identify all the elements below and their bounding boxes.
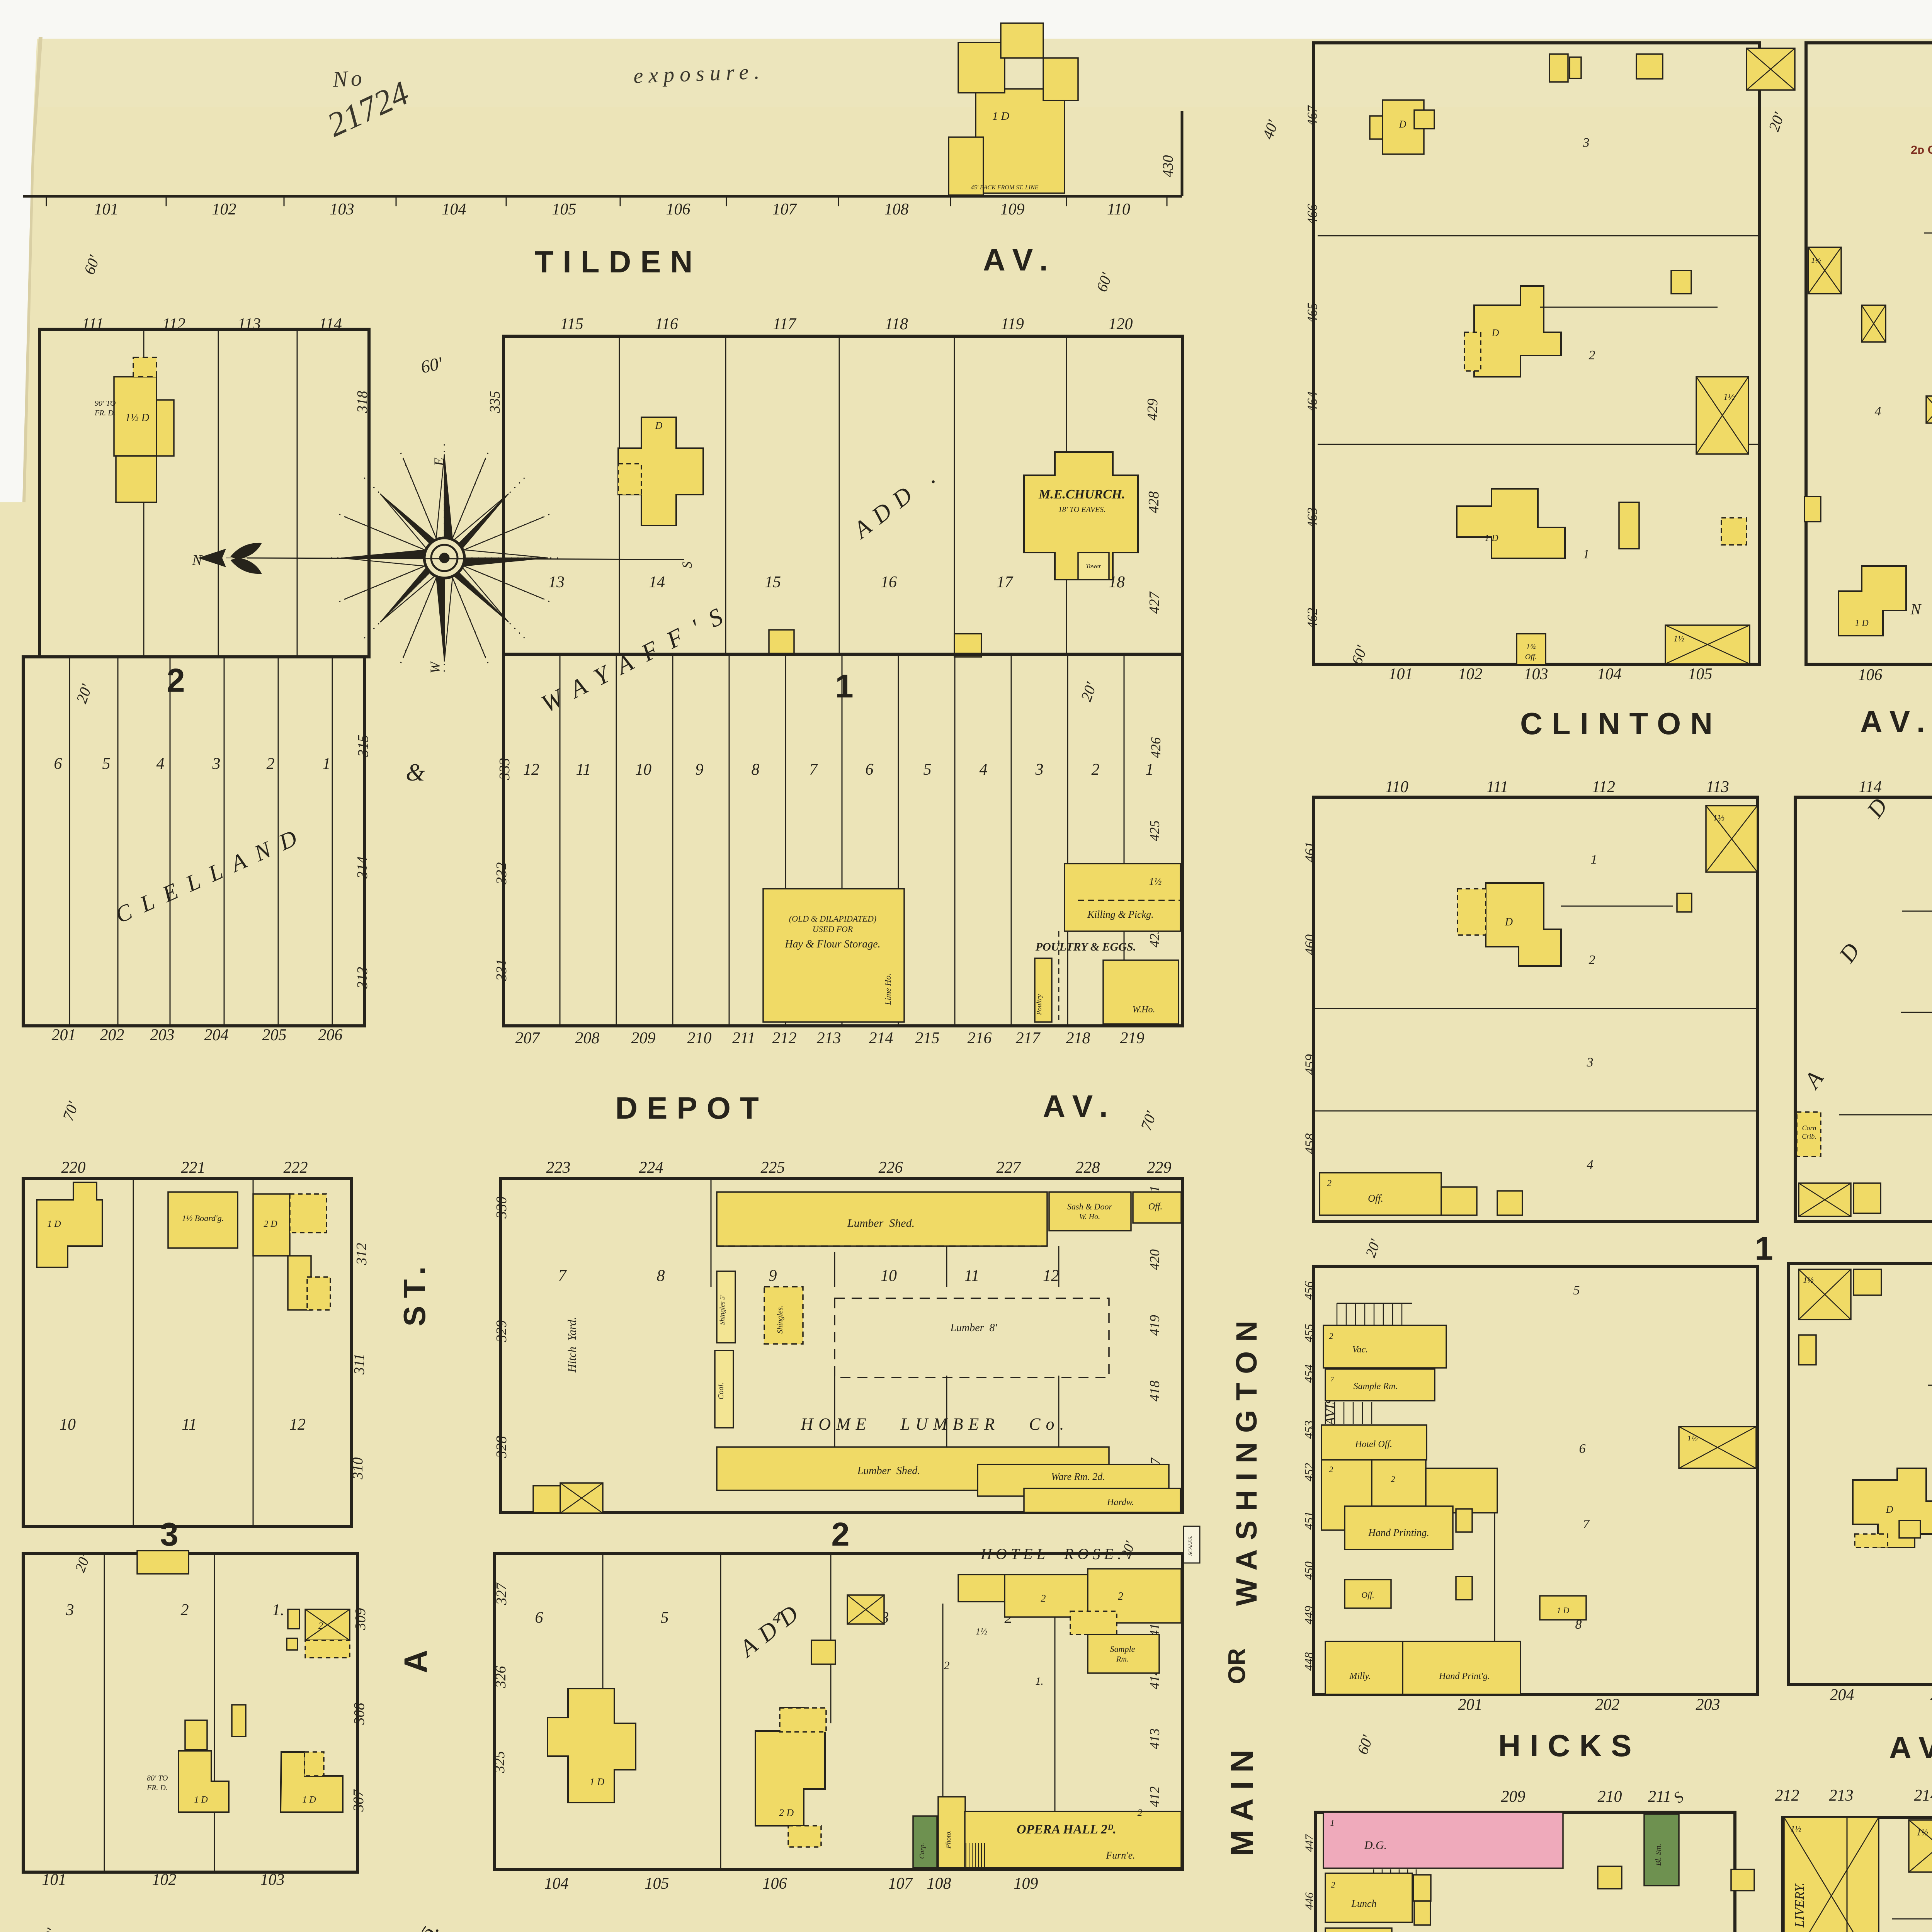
svg-text:104: 104 (442, 201, 466, 218)
svg-text:1½: 1½ (1673, 634, 1684, 643)
svg-text:455: 455 (1302, 1324, 1316, 1342)
svg-text:105: 105 (552, 201, 577, 218)
svg-text:HICKS: HICKS (1498, 1728, 1641, 1763)
svg-text:462: 462 (1304, 608, 1320, 629)
svg-text:2ᴅ COPY DEL 7O MAP DIV.: 2ᴅ COPY DEL 7O MAP DIV. (1911, 143, 1932, 156)
svg-text:315: 315 (355, 735, 371, 757)
svg-text:6: 6 (866, 761, 874, 779)
svg-text:214: 214 (1914, 1787, 1932, 1804)
svg-text:2 D: 2 D (264, 1219, 277, 1229)
svg-text:308: 308 (351, 1703, 367, 1725)
svg-text:2: 2 (1092, 761, 1100, 779)
svg-text:102: 102 (152, 1871, 177, 1889)
svg-text:1: 1 (1583, 547, 1590, 561)
svg-text:1 D: 1 D (302, 1795, 316, 1805)
svg-text:WASHINGTON: WASHINGTON (1230, 1311, 1263, 1606)
svg-text:1 D: 1 D (1855, 618, 1868, 628)
svg-text:1½: 1½ (1149, 876, 1162, 887)
svg-text:FR. D.: FR. D. (146, 1784, 168, 1792)
svg-text:D: D (1505, 916, 1513, 928)
svg-text:220: 220 (61, 1159, 86, 1177)
svg-text:103: 103 (260, 1871, 285, 1889)
svg-text:CLINTON: CLINTON (1520, 706, 1722, 741)
svg-text:Hand Print'g.: Hand Print'g. (1439, 1671, 1490, 1681)
svg-text:429: 429 (1145, 399, 1161, 421)
svg-text:&: & (406, 759, 425, 786)
svg-text:104: 104 (1597, 665, 1622, 683)
svg-text:420: 420 (1147, 1249, 1162, 1270)
svg-text:328: 328 (493, 1436, 510, 1459)
svg-text:Bl. Sm.: Bl. Sm. (1654, 1844, 1663, 1866)
svg-text:1½: 1½ (1917, 1828, 1928, 1838)
svg-text:225: 225 (761, 1159, 785, 1177)
svg-text:447: 447 (1303, 1834, 1316, 1852)
svg-text:AV.: AV. (1889, 1730, 1932, 1765)
svg-text:205: 205 (262, 1026, 287, 1044)
svg-text:101: 101 (42, 1871, 66, 1889)
svg-text:Sample: Sample (1110, 1644, 1135, 1654)
svg-text:LIVERY.: LIVERY. (1793, 1883, 1807, 1928)
svg-text:222: 222 (284, 1159, 308, 1177)
svg-text:2: 2 (167, 662, 185, 699)
svg-text:209: 209 (631, 1029, 656, 1047)
svg-text:Hay & Flour Storage.: Hay & Flour Storage. (784, 938, 880, 950)
svg-text:418: 418 (1147, 1381, 1162, 1401)
svg-text:1½: 1½ (976, 1627, 987, 1637)
svg-text:(OLD & DILAPIDATED): (OLD & DILAPIDATED) (789, 914, 877, 923)
svg-text:2: 2 (944, 1659, 950, 1672)
svg-text:9: 9 (769, 1267, 777, 1285)
svg-text:7: 7 (1331, 1375, 1335, 1383)
svg-text:467: 467 (1304, 105, 1320, 126)
svg-text:307: 307 (350, 1789, 367, 1812)
svg-text:102: 102 (212, 201, 236, 218)
svg-text:AV.: AV. (1860, 704, 1932, 739)
svg-text:2: 2 (1329, 1331, 1333, 1341)
svg-text:451: 451 (1302, 1511, 1316, 1530)
svg-text:Vac.: Vac. (1352, 1345, 1368, 1355)
svg-text:204: 204 (1830, 1686, 1854, 1704)
svg-text:333: 333 (497, 758, 513, 781)
svg-text:332: 332 (493, 862, 510, 885)
svg-text:5: 5 (661, 1609, 669, 1627)
svg-text:HOME LUMBER Co.: HOME LUMBER Co. (801, 1415, 1070, 1434)
svg-text:4: 4 (1875, 404, 1881, 418)
svg-text:460: 460 (1302, 934, 1318, 955)
svg-text:206: 206 (318, 1026, 343, 1044)
svg-text:7: 7 (810, 761, 818, 779)
svg-text:211: 211 (732, 1029, 755, 1047)
svg-text:E: E (431, 457, 447, 466)
svg-text:1½: 1½ (1713, 813, 1725, 823)
svg-text:Sample Rm.: Sample Rm. (1354, 1381, 1398, 1391)
svg-text:312: 312 (354, 1243, 370, 1265)
svg-text:117: 117 (773, 315, 797, 333)
svg-text:310: 310 (350, 1458, 366, 1480)
svg-text:207: 207 (515, 1029, 541, 1047)
svg-text:311: 311 (351, 1354, 367, 1375)
svg-text:11: 11 (964, 1267, 980, 1285)
svg-text:450: 450 (1302, 1561, 1316, 1580)
svg-text:413: 413 (1147, 1728, 1162, 1749)
svg-text:15: 15 (765, 573, 781, 591)
svg-text:11: 11 (182, 1416, 197, 1434)
svg-text:1: 1 (835, 668, 853, 705)
svg-text:6: 6 (1579, 1442, 1586, 1456)
svg-text:MAIN: MAIN (1225, 1741, 1260, 1856)
svg-text:1½: 1½ (1803, 1275, 1814, 1285)
svg-text:12: 12 (1043, 1267, 1059, 1285)
svg-text:A: A (398, 1650, 434, 1673)
svg-text:10: 10 (881, 1267, 897, 1285)
svg-text:Rm.: Rm. (1116, 1655, 1129, 1663)
svg-text:214: 214 (869, 1029, 893, 1047)
svg-text:USED FOR: USED FOR (813, 924, 853, 934)
svg-text:Off.: Off. (1361, 1590, 1374, 1600)
svg-text:3: 3 (1587, 1055, 1594, 1070)
svg-text:109: 109 (1014, 1875, 1038, 1893)
svg-text:452: 452 (1302, 1463, 1316, 1481)
svg-text:218: 218 (1066, 1029, 1090, 1047)
svg-text:1 D: 1 D (47, 1219, 61, 1229)
svg-text:No: No (332, 65, 366, 92)
svg-text:1.: 1. (1036, 1675, 1044, 1687)
svg-text:1 D: 1 D (1557, 1605, 1570, 1615)
svg-text:326: 326 (493, 1666, 509, 1689)
svg-text:120: 120 (1109, 315, 1133, 333)
svg-text:113: 113 (1706, 778, 1729, 796)
svg-text:227: 227 (997, 1159, 1022, 1177)
svg-text:1: 1 (1591, 852, 1597, 867)
svg-text:CENTER: CENTER (777, 1929, 960, 1932)
svg-text:5: 5 (102, 755, 111, 773)
svg-text:224: 224 (639, 1159, 663, 1177)
svg-text:211: 211 (1648, 1788, 1671, 1806)
svg-text:327: 327 (493, 1582, 510, 1605)
svg-text:Coal.: Coal. (717, 1383, 725, 1400)
svg-text:329: 329 (493, 1320, 510, 1343)
svg-text:AV.: AV. (983, 243, 1057, 277)
svg-text:Lunch: Lunch (1351, 1898, 1377, 1909)
svg-text:202: 202 (1595, 1696, 1620, 1714)
svg-text:Hand Printing.: Hand Printing. (1368, 1527, 1429, 1538)
svg-text:219: 219 (1120, 1029, 1145, 1047)
svg-text:S: S (679, 561, 695, 568)
svg-text:419: 419 (1147, 1315, 1162, 1336)
svg-text:112: 112 (162, 315, 185, 333)
svg-text:1: 1 (1755, 1230, 1773, 1267)
svg-text:118: 118 (885, 315, 908, 333)
svg-text:Off.: Off. (1525, 653, 1537, 661)
svg-text:TILDEN: TILDEN (535, 245, 702, 279)
svg-text:229: 229 (1147, 1159, 1172, 1177)
svg-text:12: 12 (289, 1416, 306, 1434)
svg-text:D: D (1492, 327, 1499, 338)
svg-text:1: 1 (323, 755, 331, 773)
svg-text:2: 2 (1331, 1880, 1335, 1889)
svg-text:201: 201 (52, 1026, 76, 1044)
svg-text:N: N (1910, 600, 1922, 618)
svg-text:335: 335 (487, 391, 503, 413)
svg-text:102: 102 (1458, 665, 1483, 683)
svg-text:221: 221 (181, 1159, 206, 1177)
svg-text:8: 8 (752, 761, 760, 779)
svg-text:1 D: 1 D (1485, 533, 1498, 543)
svg-text:446: 446 (1303, 1893, 1316, 1910)
svg-text:Ware Rm. 2d.: Ware Rm. 2d. (1051, 1471, 1105, 1482)
svg-text:205: 205 (1930, 1686, 1932, 1704)
svg-text:SCALES.: SCALES. (1188, 1536, 1194, 1556)
svg-text:6: 6 (54, 755, 62, 773)
svg-text:90' TO: 90' TO (95, 399, 116, 408)
svg-text:FR. D.: FR. D. (94, 409, 116, 417)
svg-text:101: 101 (94, 201, 119, 218)
svg-text:228: 228 (1076, 1159, 1100, 1177)
svg-text:11: 11 (576, 761, 591, 779)
svg-text:N: N (192, 552, 203, 568)
svg-text:2: 2 (831, 1516, 849, 1553)
svg-text:106: 106 (1858, 666, 1883, 684)
svg-text:1.: 1. (272, 1601, 284, 1619)
svg-text:3: 3 (1583, 136, 1590, 150)
svg-text:7: 7 (1583, 1517, 1590, 1531)
svg-text:456: 456 (1302, 1281, 1316, 1300)
svg-text:458: 458 (1302, 1133, 1318, 1154)
svg-text:426: 426 (1148, 737, 1163, 758)
svg-text:314: 314 (354, 857, 371, 879)
svg-text:Poultry: Poultry (1035, 994, 1043, 1015)
svg-text:318: 318 (354, 391, 371, 413)
svg-text:4: 4 (156, 755, 165, 773)
svg-text:1 D: 1 D (590, 1776, 605, 1787)
svg-text:Shingles.: Shingles. (776, 1306, 784, 1334)
svg-text:226: 226 (879, 1159, 903, 1177)
svg-text:ST.: ST. (397, 1259, 432, 1327)
svg-text:80' TO: 80' TO (147, 1774, 168, 1782)
svg-text:1½: 1½ (1811, 256, 1821, 265)
svg-text:448: 448 (1302, 1652, 1316, 1671)
svg-text:105: 105 (1688, 665, 1713, 683)
svg-text:325: 325 (492, 1751, 508, 1774)
svg-text:461: 461 (1302, 842, 1318, 862)
svg-text:Lime Ho.: Lime Ho. (883, 973, 893, 1005)
svg-text:M.E.CHURCH.: M.E.CHURCH. (1038, 487, 1125, 502)
svg-text:2: 2 (1391, 1474, 1395, 1484)
svg-text:Sash & Door: Sash & Door (1067, 1202, 1112, 1211)
svg-text:330: 330 (493, 1197, 510, 1219)
svg-text:1½ Board'g.: 1½ Board'g. (182, 1213, 224, 1223)
svg-text:5: 5 (923, 761, 932, 779)
svg-text:203: 203 (150, 1026, 175, 1044)
svg-text:213: 213 (1829, 1787, 1854, 1804)
svg-text:3: 3 (160, 1516, 178, 1553)
svg-text:101: 101 (1389, 665, 1413, 683)
svg-text:W: W (427, 661, 443, 673)
svg-text:213: 213 (817, 1029, 841, 1047)
svg-text:106: 106 (666, 201, 690, 218)
svg-text:1: 1 (1330, 1818, 1335, 1828)
svg-text:454: 454 (1302, 1364, 1316, 1383)
svg-text:106: 106 (763, 1875, 787, 1893)
svg-text:18' TO EAVES.: 18' TO EAVES. (1058, 505, 1105, 514)
svg-text:Corn: Corn (1802, 1124, 1816, 1132)
svg-text:D: D (1886, 1504, 1893, 1515)
svg-text:AV.: AV. (1043, 1089, 1117, 1123)
svg-text:1: 1 (1146, 761, 1154, 779)
svg-text:Killing & Pickg.: Killing & Pickg. (1087, 909, 1153, 920)
svg-text:459: 459 (1302, 1054, 1318, 1075)
svg-text:W. Ho.: W. Ho. (1079, 1213, 1100, 1221)
svg-text:463: 463 (1304, 507, 1320, 528)
svg-text:113: 113 (238, 315, 261, 333)
svg-text:14: 14 (649, 573, 665, 591)
svg-text:1½ D: 1½ D (125, 412, 149, 424)
svg-text:Crib.: Crib. (1802, 1133, 1816, 1140)
svg-text:8: 8 (657, 1267, 665, 1285)
svg-text:3: 3 (1035, 761, 1044, 779)
svg-text:466: 466 (1304, 204, 1320, 225)
svg-text:104: 104 (544, 1875, 569, 1893)
svg-text:2: 2 (267, 755, 275, 773)
svg-text:313: 313 (354, 967, 371, 989)
svg-text:1½: 1½ (1687, 1434, 1698, 1443)
svg-text:Off.: Off. (1368, 1193, 1383, 1204)
svg-text:110: 110 (1107, 201, 1130, 218)
svg-text:Tower: Tower (1086, 563, 1101, 570)
svg-text:103: 103 (330, 201, 354, 218)
svg-text:111: 111 (1486, 778, 1509, 796)
svg-text:Hitch Yard.: Hitch Yard. (566, 1317, 578, 1373)
svg-text:5: 5 (1573, 1283, 1580, 1298)
svg-text:210: 210 (1598, 1788, 1622, 1806)
svg-text:208: 208 (575, 1029, 600, 1047)
svg-text:45' BACK FROM ST. LINE: 45' BACK FROM ST. LINE (971, 184, 1038, 191)
svg-text:1½: 1½ (1723, 392, 1735, 402)
svg-text:114: 114 (319, 315, 342, 333)
svg-text:2: 2 (1138, 1807, 1143, 1818)
svg-text:D: D (1399, 119, 1406, 130)
svg-text:201: 201 (1458, 1696, 1483, 1714)
svg-text:105: 105 (645, 1875, 669, 1893)
svg-text:7: 7 (558, 1267, 567, 1285)
svg-text:331: 331 (493, 959, 510, 981)
svg-text:427: 427 (1146, 591, 1163, 614)
svg-text:428: 428 (1146, 492, 1162, 514)
svg-text:DEPOT: DEPOT (615, 1091, 768, 1125)
svg-text:Photo.: Photo. (944, 1830, 952, 1849)
svg-text:216: 216 (968, 1029, 992, 1047)
svg-text:9: 9 (696, 761, 704, 779)
svg-text:W.Ho.: W.Ho. (1132, 1005, 1155, 1015)
svg-text:412: 412 (1147, 1786, 1162, 1807)
svg-text:Milly.: Milly. (1349, 1671, 1371, 1681)
svg-text:119: 119 (1001, 315, 1024, 333)
svg-text:112: 112 (1592, 778, 1615, 796)
svg-text:209: 209 (1501, 1788, 1526, 1806)
svg-text:464: 464 (1304, 391, 1320, 412)
svg-text:108: 108 (927, 1875, 951, 1893)
svg-text:16: 16 (881, 573, 897, 591)
svg-text:POULTRY & EGGS.: POULTRY & EGGS. (1035, 940, 1136, 953)
svg-text:Off.: Off. (1148, 1202, 1163, 1212)
svg-text:1 D: 1 D (992, 110, 1010, 122)
svg-text:13: 13 (548, 573, 565, 591)
svg-text:425: 425 (1147, 820, 1162, 841)
svg-text:2: 2 (1118, 1590, 1123, 1602)
svg-text:17: 17 (997, 573, 1014, 591)
svg-text:212: 212 (1775, 1787, 1799, 1804)
svg-text:430: 430 (1160, 155, 1176, 177)
svg-text:Lumber 8': Lumber 8' (950, 1322, 997, 1334)
svg-text:12: 12 (523, 761, 539, 779)
svg-text:2: 2 (1327, 1179, 1332, 1189)
svg-text:OR: OR (1224, 1648, 1250, 1684)
svg-text:116: 116 (655, 315, 678, 333)
svg-text:Hotel Off.: Hotel Off. (1355, 1439, 1392, 1449)
svg-text:203: 203 (1696, 1696, 1720, 1714)
svg-text:107: 107 (888, 1875, 913, 1893)
svg-text:202: 202 (100, 1026, 124, 1044)
svg-text:215: 215 (915, 1029, 940, 1047)
svg-text:223: 223 (546, 1159, 571, 1177)
svg-text:1 D: 1 D (194, 1795, 207, 1805)
svg-text:217: 217 (1016, 1029, 1041, 1047)
svg-text:exposure.: exposure. (633, 60, 765, 88)
svg-text:2: 2 (1589, 348, 1595, 362)
svg-text:3: 3 (212, 755, 221, 773)
svg-text:D: D (655, 420, 663, 431)
svg-text:108: 108 (884, 201, 909, 218)
svg-text:210: 210 (687, 1029, 712, 1047)
svg-text:2 D: 2 D (779, 1807, 794, 1818)
svg-text:Furn'e.: Furn'e. (1105, 1850, 1135, 1861)
svg-text:Hardw.: Hardw. (1107, 1497, 1134, 1507)
svg-text:10: 10 (635, 761, 651, 779)
svg-text:449: 449 (1302, 1606, 1316, 1624)
svg-text:2: 2 (1329, 1464, 1333, 1474)
svg-text:D.G.: D.G. (1364, 1839, 1387, 1852)
svg-text:Lumber Shed.: Lumber Shed. (847, 1217, 915, 1230)
svg-text:114: 114 (1859, 778, 1882, 796)
svg-text:110: 110 (1385, 778, 1408, 796)
svg-text:10: 10 (60, 1416, 76, 1434)
svg-text:309: 309 (352, 1608, 369, 1631)
svg-text:2: 2 (1041, 1593, 1046, 1604)
svg-text:109: 109 (1000, 201, 1025, 218)
svg-text:Shingles 5': Shingles 5' (718, 1294, 726, 1325)
svg-text:3: 3 (66, 1601, 74, 1619)
svg-text:465: 465 (1304, 303, 1320, 323)
svg-text:453: 453 (1302, 1420, 1316, 1439)
svg-text:1½: 1½ (1791, 1824, 1801, 1833)
svg-text:115: 115 (560, 315, 583, 333)
svg-text:4: 4 (980, 761, 988, 779)
svg-text:107: 107 (772, 201, 798, 218)
svg-text:111: 111 (82, 315, 104, 333)
svg-text:2: 2 (318, 1621, 323, 1631)
svg-text:204: 204 (204, 1026, 229, 1044)
svg-text:103: 103 (1524, 665, 1548, 683)
svg-text:1¾: 1¾ (1526, 643, 1536, 651)
svg-text:Lumber Shed.: Lumber Shed. (857, 1465, 920, 1477)
svg-text:Carp.: Carp. (918, 1843, 926, 1859)
svg-text:6: 6 (535, 1609, 543, 1627)
svg-text:212: 212 (772, 1029, 797, 1047)
svg-text:2: 2 (1589, 953, 1595, 967)
svg-text:2: 2 (181, 1601, 189, 1619)
svg-text:OPERA HALL 2ᴰ.: OPERA HALL 2ᴰ. (1017, 1822, 1116, 1837)
svg-text:4: 4 (1587, 1158, 1594, 1172)
